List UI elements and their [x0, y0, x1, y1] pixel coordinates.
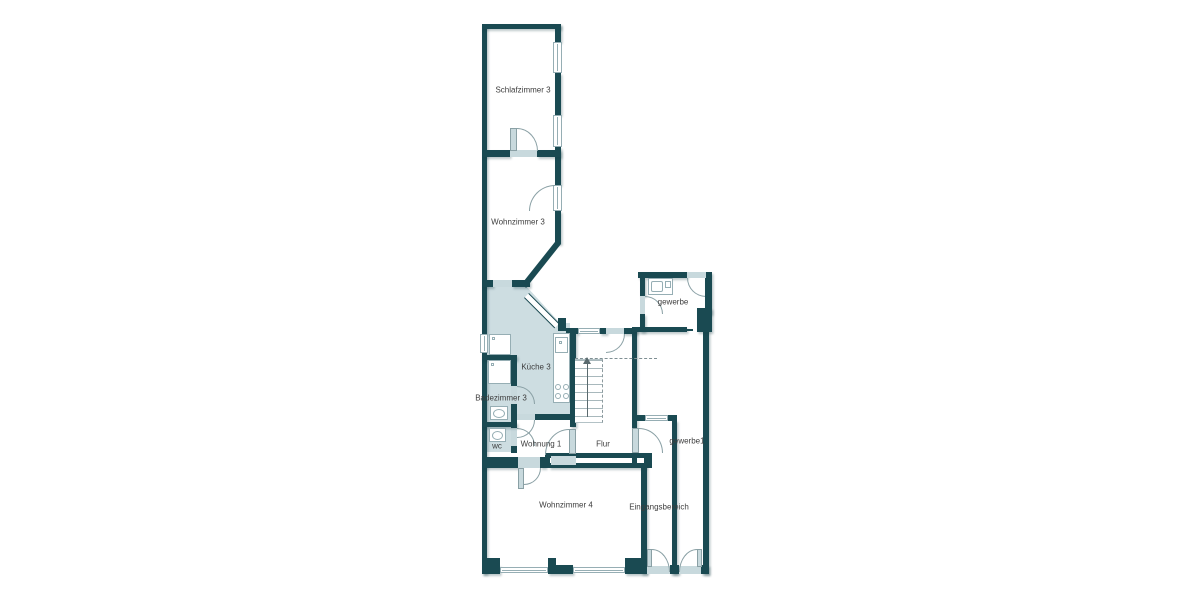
- wall: [632, 327, 687, 332]
- wall: [670, 565, 679, 574]
- passage-opening: [493, 280, 512, 287]
- door-swing-arc: [679, 549, 697, 572]
- door-leaf: [632, 428, 639, 453]
- wall: [640, 278, 645, 296]
- door-opening: [518, 457, 540, 468]
- wall: [482, 457, 518, 468]
- window: [553, 42, 562, 73]
- stove-burner: [555, 393, 561, 399]
- stair-arrowhead: [583, 357, 591, 364]
- stair-direction-arrow: [587, 363, 588, 417]
- stove-burner: [563, 393, 569, 399]
- sink-fixture: [555, 337, 568, 353]
- faucet-dot: [559, 341, 562, 344]
- room-label-badezimmer-3: Badezimmer 3: [475, 394, 527, 403]
- fixture-dot: [491, 363, 494, 366]
- room-label-wohnzimmer-4: Wohnzimmer 4: [539, 501, 593, 510]
- room-label-flur: Flur: [596, 440, 610, 449]
- room-label-wc: wc: [492, 442, 502, 451]
- wall: [637, 415, 645, 421]
- wall: [482, 280, 493, 287]
- wall: [668, 415, 677, 421]
- wall: [537, 150, 561, 157]
- window: [573, 567, 625, 573]
- wall: [555, 73, 561, 115]
- wall: [482, 150, 510, 157]
- room-label-wohnzimmer-3: Wohnzimmer 3: [491, 218, 545, 227]
- wall: [482, 422, 517, 427]
- washbasin-fixture: [490, 406, 508, 420]
- sink-drainer: [665, 281, 671, 288]
- kitchen-counter-fixture: [553, 333, 570, 403]
- window: [553, 115, 562, 147]
- door-swing-arc: [517, 128, 538, 151]
- wall: [625, 558, 641, 565]
- door-swing-arc: [529, 185, 555, 211]
- door-swing-arc: [639, 428, 663, 453]
- door-swing-arc: [606, 334, 625, 353]
- gewerbe-sink-fixture: [648, 278, 673, 295]
- dashed-wall-opening: [687, 329, 704, 331]
- wall: [482, 565, 500, 574]
- basin-oval: [493, 409, 505, 418]
- wall: [548, 565, 573, 574]
- wall: [545, 453, 550, 468]
- wall: [487, 558, 500, 565]
- door-leaf: [569, 429, 576, 454]
- door-swing-arc: [687, 278, 706, 297]
- wall: [625, 565, 647, 574]
- wall: [535, 414, 570, 420]
- wall: [511, 446, 517, 453]
- room-label-gewerbe1: gewerbe1: [669, 437, 704, 446]
- room-label-wohnung-1: Wohnung 1: [521, 440, 562, 449]
- door-opening: [551, 456, 576, 465]
- stove-burner: [563, 384, 569, 390]
- door-swing-arc: [652, 549, 670, 572]
- room-label-schlafzimmer-3: Schlafzimmer 3: [495, 86, 550, 95]
- wall: [632, 328, 637, 428]
- toilet-oval: [492, 431, 503, 440]
- wall: [701, 565, 709, 574]
- wall: [548, 558, 556, 565]
- sink-basin: [651, 281, 663, 292]
- fixture-dot: [492, 337, 495, 340]
- door-leaf: [697, 549, 702, 567]
- window: [480, 334, 488, 353]
- wall: [482, 24, 487, 334]
- wall: [632, 453, 637, 463]
- room-label-kueche-3: Küche 3: [521, 363, 550, 372]
- window: [578, 328, 600, 334]
- window: [500, 567, 548, 573]
- floor-plan: Schlafzimmer 3 Wohnzimmer 3 Küche 3 Bade…: [0, 0, 1200, 600]
- door-leaf: [510, 128, 517, 151]
- door-opening: [510, 150, 537, 157]
- toilet-fixture: [489, 428, 506, 442]
- wall: [558, 318, 566, 331]
- wall: [511, 360, 517, 386]
- wall: [482, 24, 561, 29]
- wall-diagonal: [521, 240, 561, 288]
- window: [645, 415, 668, 421]
- wall: [703, 327, 709, 574]
- staircase: [575, 359, 603, 423]
- wall: [555, 24, 561, 42]
- door-swing-arc: [524, 468, 541, 485]
- storage-fixture: [489, 334, 511, 355]
- room-label-gewerbe: gewerbe: [658, 298, 689, 307]
- stove-burner: [555, 384, 561, 390]
- room-label-eingangsbereich: Eingangsbereich: [629, 503, 689, 512]
- bathtub-fixture: [488, 360, 511, 384]
